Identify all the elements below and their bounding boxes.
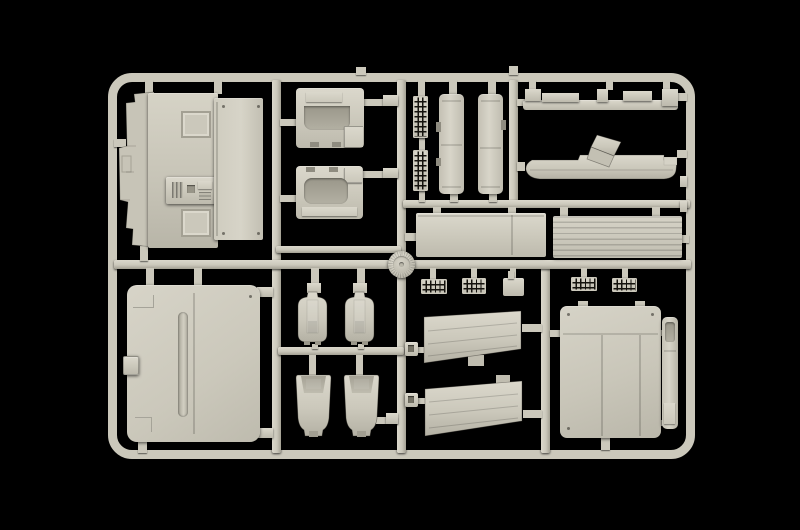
backrest-lower-panel (308, 321, 317, 333)
sprue-connector-stub (138, 441, 147, 453)
strip-top-recess (665, 322, 675, 342)
ejector-pin-mark (249, 295, 252, 298)
cushion-pan-highlight (306, 379, 321, 389)
side-fairing-panel-ribbed (553, 216, 682, 258)
dashboard-module-upper (296, 88, 364, 148)
panel-seam (563, 333, 658, 335)
cab-rear-wall-panel (214, 98, 263, 240)
small-mounting-plate (503, 278, 524, 296)
sprue-connector-stub (489, 193, 497, 202)
member-seam (481, 100, 500, 102)
backrest-foot (315, 341, 321, 345)
air-deflector-wedges (418, 303, 526, 443)
ejector-pin-mark (651, 313, 654, 316)
panel-seam (216, 102, 218, 236)
fairing-seam (511, 215, 513, 255)
roof-corner-notch (135, 417, 152, 432)
member-seam (442, 186, 461, 188)
spoiler-strip-block (525, 89, 541, 101)
mounting-block-lower (405, 393, 418, 407)
dashboard-module-lower (296, 166, 363, 219)
sprue-connector-stub (508, 271, 514, 279)
cab-access-hatch-upper (181, 111, 211, 138)
air-deflector-wedge-lower (425, 381, 522, 436)
panel-seam (601, 335, 603, 436)
strip-bottom-segment (664, 403, 675, 424)
dashboard-bottom-ledge (302, 207, 357, 216)
deflector-end-step (664, 157, 677, 165)
member-tab (501, 120, 506, 130)
intake-grille-2 (462, 278, 486, 294)
backrest-foot (351, 341, 357, 345)
spoiler-strip-block (597, 89, 608, 102)
strip-seam (664, 350, 676, 352)
ejector-pin-mark (257, 232, 260, 235)
sprue-connector-block (386, 413, 398, 424)
sprue-connector-stub (194, 268, 202, 286)
rear-cab-panel-large (560, 306, 661, 438)
ejector-pin-mark (567, 427, 570, 430)
dashboard-top-ledge (306, 92, 342, 102)
roof-center-seam (193, 293, 195, 434)
member-tab (436, 158, 441, 166)
member-seam (442, 100, 461, 102)
member-seam (441, 144, 462, 146)
engine-detail-vents (199, 192, 211, 200)
sprue-runner-dashboard-lower (276, 246, 401, 253)
ejector-pin-mark (567, 313, 570, 316)
dashboard-foot (306, 167, 315, 172)
sprue-connector-stub (280, 119, 297, 126)
vent-grille-vertical-upper (413, 96, 428, 138)
engine-detail-ribs (172, 182, 183, 198)
backrest-lower-panel (355, 321, 364, 333)
round-hub-cap (388, 251, 415, 278)
dashboard-recess (304, 178, 348, 204)
mounting-block-upper (405, 342, 418, 356)
ejector-pin-mark (222, 232, 225, 235)
cushion-bottom-notch (309, 431, 318, 437)
dashboard-corner-step (344, 126, 363, 147)
chassis-side-member-right (478, 94, 503, 194)
sprue-connector-stub (309, 355, 316, 375)
seat-cushion-left (295, 373, 332, 438)
seat-cushion-right (343, 373, 380, 438)
dashboard-foot (310, 142, 319, 147)
backrest-foot (304, 341, 310, 345)
fairing-top-edge (418, 215, 544, 217)
intake-grille-4 (612, 278, 637, 292)
sprue-connector-stub (419, 190, 425, 202)
panel-seam (639, 335, 641, 436)
seat-backrest-right (343, 291, 376, 346)
member-tab (436, 122, 441, 132)
member-seam (480, 147, 501, 149)
wind-deflector-with-bracket-arm (518, 128, 683, 186)
sprue-connector-stub (550, 330, 560, 337)
intake-grille-3 (571, 277, 597, 291)
sprue-connector-block (383, 95, 398, 106)
photo-model-kit-sprue (0, 0, 800, 530)
spoiler-strip-block (542, 93, 579, 102)
sprue-runner-horizontal-upper (403, 200, 690, 208)
sprue-connector-stub (450, 193, 458, 202)
roof-corner-notch (133, 295, 154, 308)
ejector-pin-mark (257, 105, 260, 108)
roof-spoiler-strip (523, 87, 680, 113)
engine-detail-cap (198, 181, 212, 189)
ejector-pin-mark (222, 105, 225, 108)
sprue-connector-stub (214, 80, 222, 94)
vent-grille-vertical-lower (413, 150, 428, 191)
sprue-rail-tab (680, 201, 687, 212)
spoiler-strip-end-block (662, 89, 678, 106)
mounting-block-hole (408, 345, 414, 352)
sprue-connector-stub (601, 437, 610, 450)
intake-grille-1 (421, 279, 447, 294)
roof-slot-channel (178, 312, 188, 417)
sprue-connector-block (383, 168, 398, 178)
sprue-connector-stub (356, 355, 363, 375)
sprue-connector-stub (509, 66, 518, 75)
cab-roof-panel (127, 285, 260, 442)
seat-backrest-left (296, 291, 329, 346)
spoiler-strip-block (623, 91, 652, 101)
backrest-foot (362, 341, 368, 345)
mounting-block-hole (408, 396, 414, 403)
dashboard-foot (332, 142, 341, 147)
sprue-connector-stub (146, 268, 154, 286)
door-edge-strip (662, 317, 678, 429)
cab-access-hatch-lower (181, 209, 211, 237)
sprue-connector-stub (356, 67, 366, 75)
cushion-pan-highlight (354, 379, 369, 389)
sprue-runner-vertical-4 (541, 266, 550, 453)
sprue-connector-stub (681, 235, 689, 243)
member-seam (481, 186, 500, 188)
dashboard-foot (329, 167, 338, 172)
sprue-connector-stub (418, 80, 425, 97)
roof-edge-tab (123, 356, 139, 375)
side-fairing-panel-smooth (416, 213, 546, 257)
sprue-connector-stub (280, 195, 297, 202)
engine-tunnel-detail (166, 177, 216, 204)
engine-detail-socket (187, 185, 195, 193)
cushion-bottom-notch (357, 431, 366, 437)
chassis-side-member-left (439, 94, 464, 194)
sprue-runner-seat-row (278, 347, 404, 355)
